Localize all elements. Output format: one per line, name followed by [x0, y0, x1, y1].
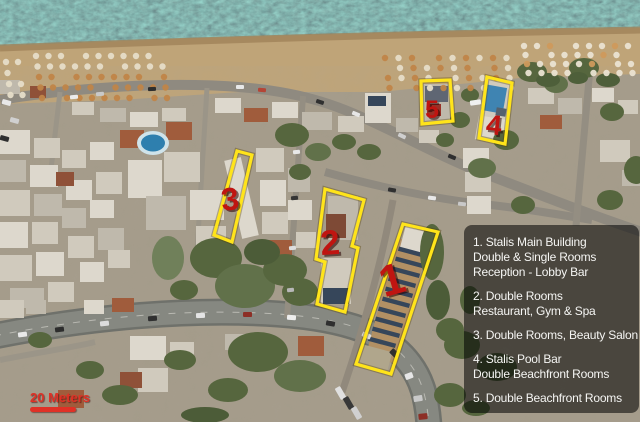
beach-umbrella: [467, 85, 473, 91]
building-roof: [215, 98, 241, 113]
beach-umbrella: [58, 53, 64, 59]
legend-line: Double Beachfront Rooms: [473, 367, 631, 382]
beach-umbrella: [382, 55, 388, 61]
building-roof: [0, 160, 26, 182]
building-roof: [130, 112, 158, 127]
building-roof: [56, 172, 74, 186]
beach-umbrella: [424, 65, 430, 71]
beach-umbrella: [454, 85, 460, 91]
beach-umbrella: [563, 61, 569, 67]
beach-umbrella: [50, 84, 56, 90]
beach-umbrella: [586, 43, 592, 49]
building-roof: [26, 300, 46, 314]
beach-umbrella: [522, 52, 528, 58]
beach-umbrella: [3, 59, 9, 65]
beach-umbrella: [440, 85, 446, 91]
building-roof: [0, 190, 30, 216]
beach-umbrella: [98, 74, 104, 80]
beach-umbrella: [505, 65, 511, 71]
beach-umbrella: [451, 65, 457, 71]
beach-umbrella: [123, 74, 129, 80]
beach-umbrella: [75, 84, 81, 90]
beach-umbrella: [136, 74, 142, 80]
marker-3: 3: [219, 180, 240, 218]
beach-umbrella: [603, 70, 609, 76]
beach-umbrella: [551, 70, 557, 76]
car: [418, 413, 428, 420]
vegetation: [164, 350, 196, 370]
beach-umbrella: [4, 70, 10, 76]
beach-umbrella: [476, 55, 482, 61]
legend-item-5: 5. Double Beachfront Rooms: [473, 391, 631, 406]
vegetation: [170, 280, 198, 300]
vegetation: [434, 383, 466, 407]
car: [196, 313, 205, 318]
beach-umbrella: [397, 65, 403, 71]
beach-umbrella: [72, 63, 78, 69]
marker-2: 2: [319, 223, 341, 263]
beach-umbrella: [39, 95, 45, 101]
beach-umbrella: [386, 85, 392, 91]
building-roof: [146, 196, 186, 230]
beach-umbrella: [576, 61, 582, 67]
building-roof: [32, 222, 58, 244]
building-roof: [164, 152, 200, 182]
beach-umbrella: [573, 43, 579, 49]
beach-umbrella: [629, 70, 635, 76]
legend-line: 5. Double Beachfront Rooms: [473, 391, 631, 406]
building-roof: [84, 300, 104, 314]
legend-line: 3. Double Rooms, Beauty Salon: [473, 328, 631, 343]
building-roof: [302, 112, 332, 130]
beach-umbrella: [612, 43, 618, 49]
beach-umbrella: [133, 53, 139, 59]
vegetation: [305, 143, 331, 161]
building-roof: [128, 160, 162, 198]
building-roof: [166, 122, 192, 140]
legend-line: Reception - Lobby Bar: [473, 265, 631, 280]
car: [258, 88, 266, 93]
building-roof: [256, 148, 284, 172]
beach-umbrella: [162, 84, 168, 90]
scale-label: 20 Meters: [30, 390, 90, 405]
beach-umbrella: [161, 74, 167, 80]
beach-umbrella: [134, 63, 140, 69]
building-roof: [90, 142, 114, 160]
beach-umbrella: [409, 55, 415, 61]
vegetation: [244, 239, 280, 265]
beach-umbrella: [145, 53, 151, 59]
beach-umbrella: [159, 63, 165, 69]
building-roof: [0, 300, 24, 318]
car: [293, 150, 300, 155]
beach-umbrella: [7, 92, 13, 98]
beach-umbrella: [114, 95, 120, 101]
building-roof: [30, 165, 58, 187]
vegetation: [426, 280, 450, 320]
beach-umbrella: [47, 63, 53, 69]
beach-umbrella: [84, 63, 90, 69]
car: [96, 92, 104, 97]
vegetation: [289, 164, 311, 180]
beach-umbrella: [112, 84, 118, 90]
building-roof: [419, 130, 439, 143]
beach-umbrella: [437, 65, 443, 71]
beach-umbrella: [525, 70, 531, 76]
beach-umbrella: [616, 70, 622, 76]
building-roof: [112, 298, 134, 312]
building-roof: [108, 250, 130, 268]
building-roof: [368, 96, 386, 106]
beach-umbrella: [95, 53, 101, 59]
car: [70, 95, 78, 100]
building-roof: [396, 118, 418, 132]
vegetation: [600, 103, 624, 121]
building-roof: [130, 336, 166, 360]
beach-umbrella: [108, 53, 114, 59]
beach-umbrella: [463, 55, 469, 61]
beach-umbrella: [574, 52, 580, 58]
car: [291, 196, 298, 201]
beach-umbrella: [524, 61, 530, 67]
vegetation: [597, 190, 623, 210]
beach-umbrella: [120, 53, 126, 59]
beach-umbrella: [436, 55, 442, 61]
resort-map-figure: 1122334455 1. Stalis Main BuildingDouble…: [0, 0, 640, 422]
beach-umbrella: [561, 52, 567, 58]
building-roof: [72, 102, 94, 115]
beach-umbrella: [86, 74, 92, 80]
vegetation: [76, 361, 104, 379]
beach-umbrella: [625, 43, 631, 49]
beach-umbrella: [615, 61, 621, 67]
building-roof: [467, 196, 491, 214]
beach-umbrella: [412, 75, 418, 81]
swimming-pool: [141, 135, 165, 152]
beach-umbrella: [73, 74, 79, 80]
car: [148, 316, 157, 322]
building-roof: [0, 130, 30, 154]
vegetation: [282, 278, 318, 306]
beach-umbrella: [48, 74, 54, 80]
building-roof: [244, 108, 268, 122]
beach-umbrella: [6, 81, 12, 87]
beach-umbrella: [599, 43, 605, 49]
beach-umbrella: [59, 63, 65, 69]
building-roof: [98, 228, 124, 250]
vegetation: [102, 385, 138, 405]
scale-line: [30, 407, 76, 412]
beach-umbrella: [600, 52, 606, 58]
legend-line: 2. Double Rooms: [473, 289, 631, 304]
building-roof: [298, 336, 324, 356]
beach-umbrella: [18, 81, 24, 87]
beach-umbrella: [395, 55, 401, 61]
legend-item-4: 4. Stalis Pool BarDouble Beachfront Room…: [473, 352, 631, 382]
building-roof: [68, 236, 94, 258]
map-legend: 1. Stalis Main BuildingDouble & Single R…: [464, 225, 639, 413]
beach-umbrella: [613, 52, 619, 58]
building-roof: [592, 88, 614, 102]
car: [458, 202, 466, 207]
car: [100, 321, 109, 327]
vegetation: [208, 378, 248, 402]
beach-umbrella: [410, 65, 416, 71]
beach-umbrella: [33, 53, 39, 59]
vegetation: [274, 360, 326, 392]
beach-umbrella: [36, 74, 42, 80]
beach-umbrella: [464, 65, 470, 71]
beach-umbrella: [452, 75, 458, 81]
building-roof: [338, 116, 364, 132]
vegetation: [28, 332, 52, 348]
vegetation: [568, 72, 588, 84]
building-roof: [262, 212, 288, 234]
beach-umbrella: [147, 63, 153, 69]
beach-umbrella: [466, 75, 472, 81]
building-roof: [296, 232, 316, 248]
beach-umbrella: [151, 95, 157, 101]
marker-5: 5: [425, 96, 439, 124]
legend-line: 4. Stalis Pool Bar: [473, 352, 631, 367]
legend-line: Double & Single Rooms: [473, 250, 631, 265]
building-roof: [62, 208, 86, 228]
beach-umbrella: [587, 52, 593, 58]
vegetation: [152, 236, 184, 280]
beach-umbrella: [550, 61, 556, 67]
building-roof: [100, 108, 126, 122]
beach-umbrella: [37, 84, 43, 90]
beach-umbrella: [19, 92, 25, 98]
beach-umbrella: [64, 95, 70, 101]
beach-umbrella: [111, 74, 117, 80]
building-roof: [36, 252, 64, 276]
legend-item-2: 2. Double RoomsRestaurant, Gym & Spa: [473, 289, 631, 319]
building-roof: [34, 138, 60, 158]
beach-umbrella: [34, 63, 40, 69]
beach-umbrella: [164, 95, 170, 101]
beach-umbrella: [490, 55, 496, 61]
legend-item-3: 3. Double Rooms, Beauty Salon: [473, 328, 631, 343]
beach-umbrella: [590, 70, 596, 76]
beach-umbrella: [83, 53, 89, 59]
beach-umbrella: [427, 85, 433, 91]
beach-umbrella: [385, 75, 391, 81]
beach-umbrella: [45, 53, 51, 59]
building-roof: [260, 180, 286, 206]
beach-umbrella: [449, 55, 455, 61]
building-roof: [272, 102, 298, 118]
legend-line: 1. Stalis Main Building: [473, 235, 631, 250]
car: [148, 87, 156, 91]
building-roof: [600, 140, 630, 162]
vegetation: [332, 134, 356, 150]
building-roof: [0, 255, 32, 281]
beach-umbrella: [126, 95, 132, 101]
building-roof: [80, 262, 104, 282]
building-roof: [558, 98, 582, 114]
beach-umbrella: [97, 63, 103, 69]
building-roof: [540, 115, 562, 129]
building-roof: [48, 282, 74, 302]
legend-item-1: 1. Stalis Main BuildingDouble & Single R…: [473, 235, 631, 280]
scale-bar: 20 Meters: [30, 390, 90, 412]
beach-umbrella: [491, 65, 497, 71]
building-roof: [138, 368, 168, 392]
car: [236, 85, 244, 89]
beach-umbrella: [564, 70, 570, 76]
building-roof: [288, 200, 312, 220]
beach-umbrella: [534, 43, 540, 49]
car: [243, 312, 252, 317]
beach-umbrella: [547, 43, 553, 49]
building-roof: [90, 200, 114, 218]
building-roof: [162, 108, 186, 121]
beach-umbrella: [125, 84, 131, 90]
building-roof: [62, 150, 86, 168]
vegetation: [436, 133, 454, 147]
car: [289, 246, 296, 251]
beach-umbrella: [628, 61, 634, 67]
beach-umbrella: [521, 43, 527, 49]
vegetation: [228, 332, 288, 372]
beach-umbrella: [538, 70, 544, 76]
beach-umbrella: [62, 84, 68, 90]
beach-umbrella: [548, 52, 554, 58]
beach-umbrella: [503, 55, 509, 61]
beach-umbrella: [137, 84, 143, 90]
vegetation: [357, 144, 381, 160]
building-roof: [34, 194, 62, 216]
legend-line: Restaurant, Gym & Spa: [473, 304, 631, 319]
car: [287, 315, 296, 321]
car: [287, 288, 294, 293]
vegetation: [511, 196, 535, 214]
beach-umbrella: [89, 95, 95, 101]
beach-umbrella: [589, 61, 595, 67]
beach-umbrella: [15, 59, 21, 65]
beach-umbrella: [87, 84, 93, 90]
beach-umbrella: [537, 61, 543, 67]
beach-umbrella: [398, 75, 404, 81]
building-roof: [0, 222, 28, 248]
vegetation: [275, 123, 309, 147]
vegetation: [468, 158, 496, 178]
beach-umbrella: [122, 63, 128, 69]
building-roof: [96, 172, 122, 194]
